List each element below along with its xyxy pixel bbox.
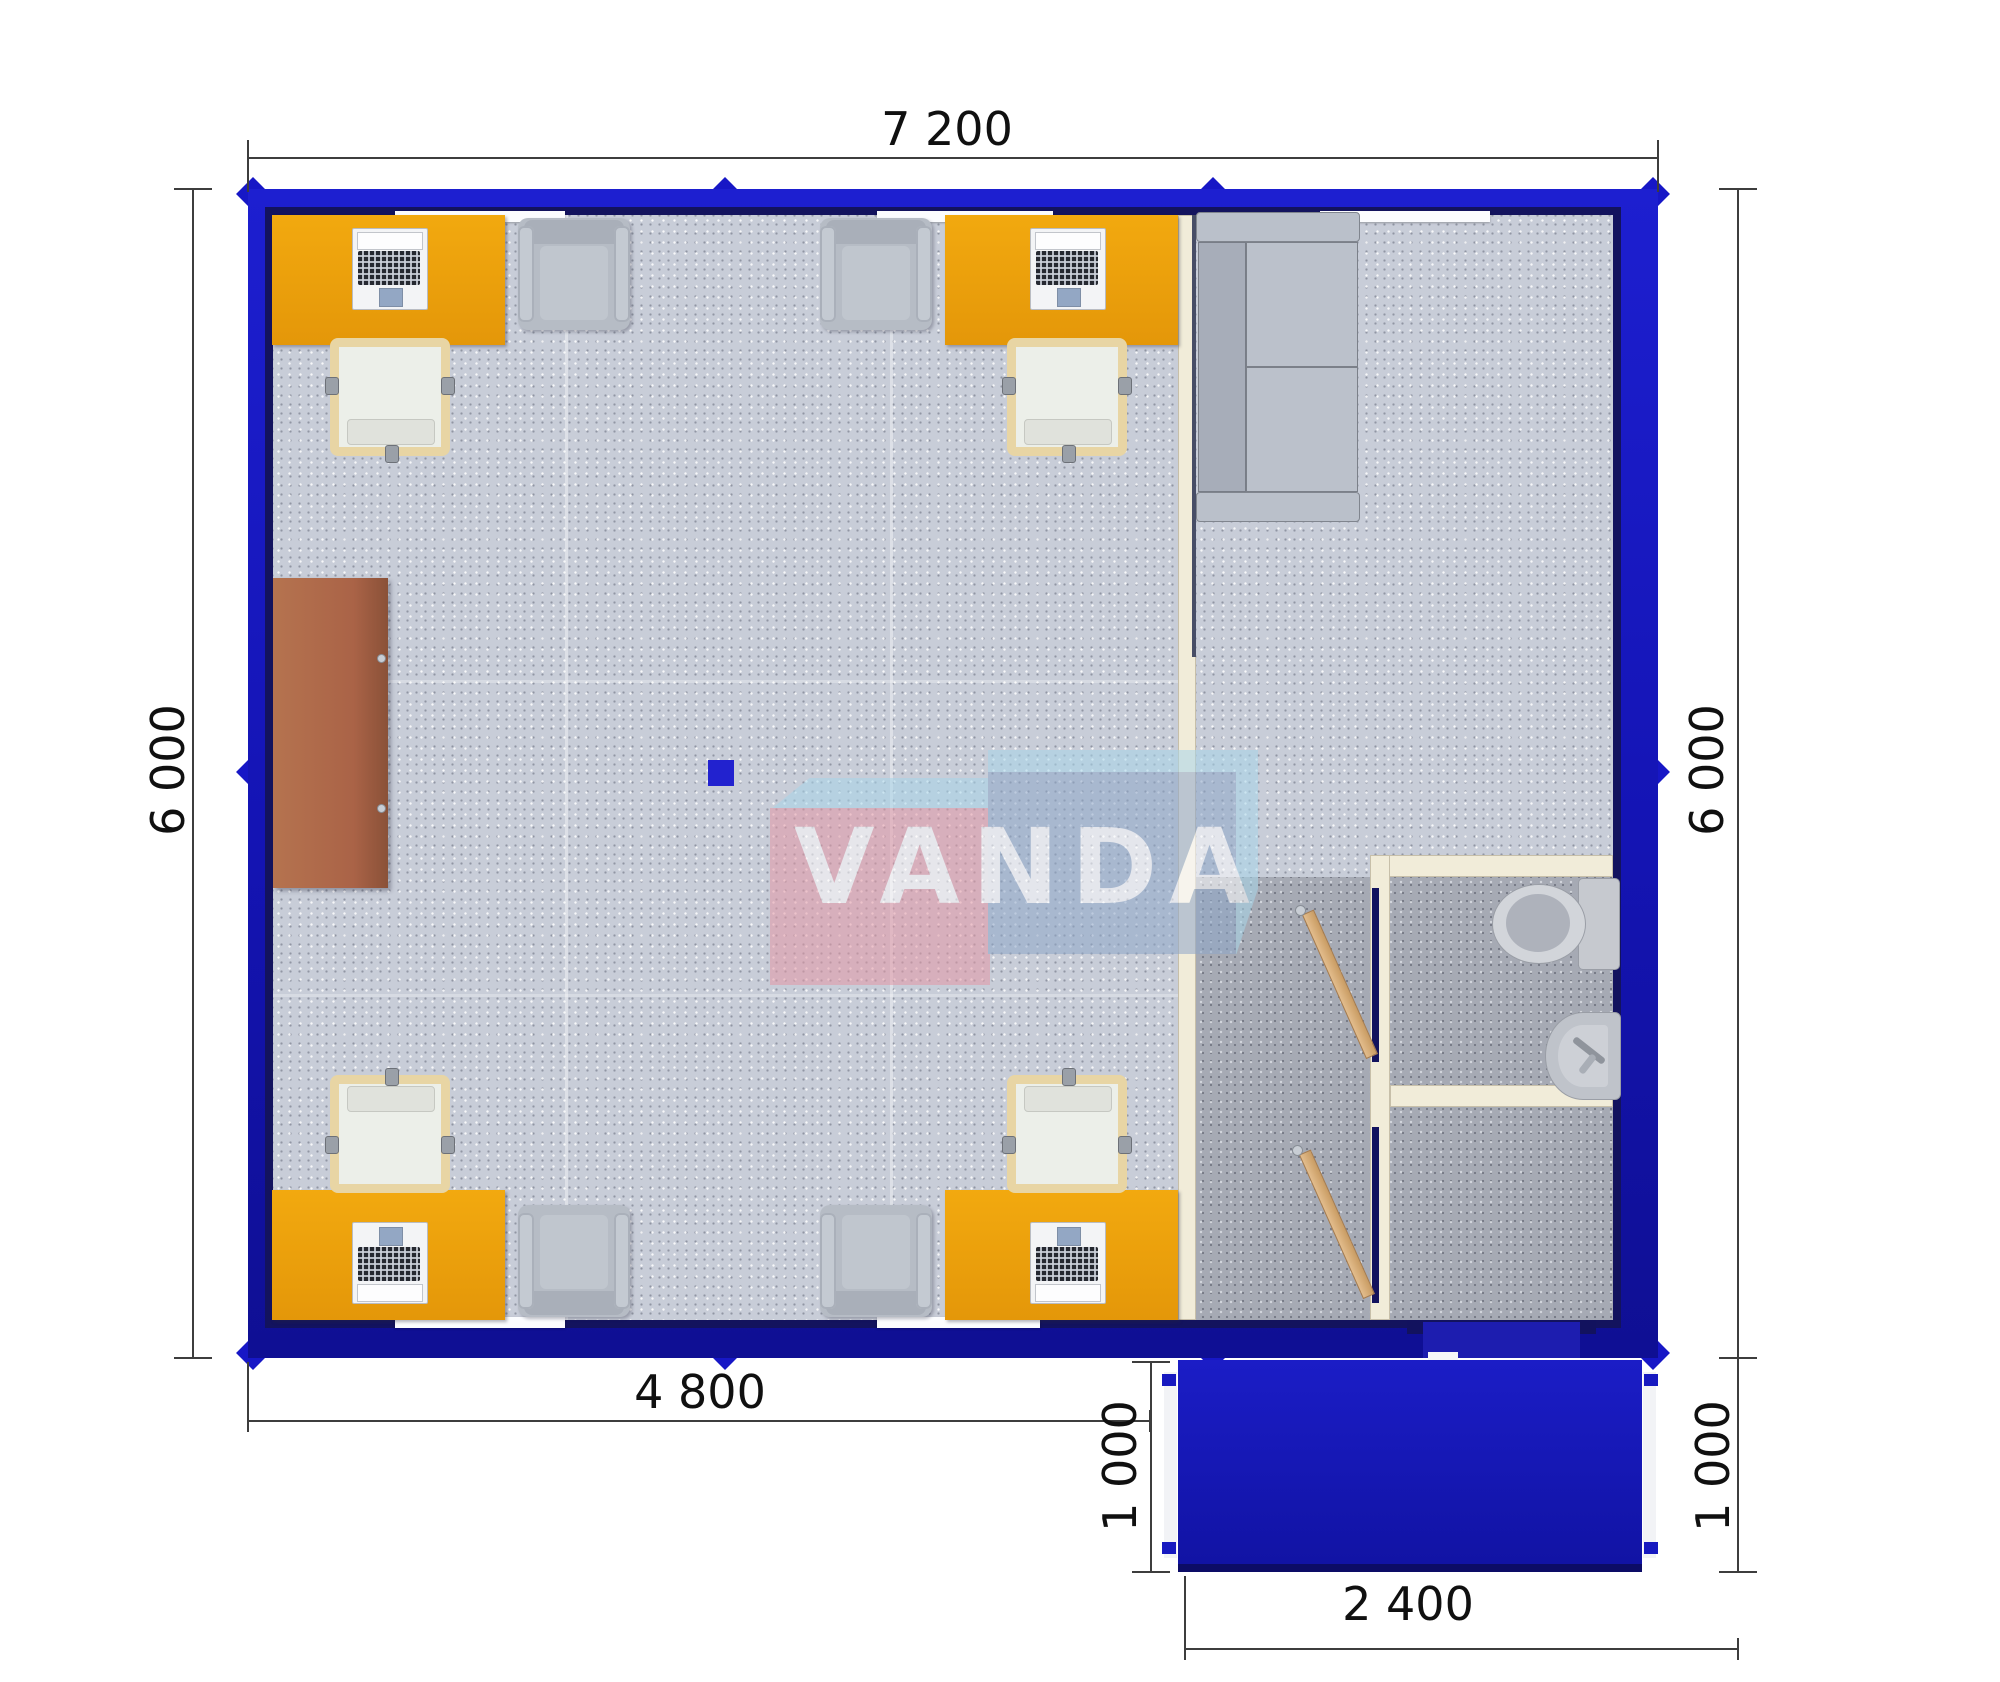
porch-corner-foot bbox=[1162, 1374, 1176, 1386]
laptop bbox=[352, 228, 428, 310]
dim-line-porch-left bbox=[1150, 1362, 1152, 1572]
sofa-seat-cushion bbox=[1246, 242, 1358, 367]
door-frame bbox=[1372, 1127, 1379, 1303]
visitor-chair-back bbox=[524, 220, 624, 244]
office-chair bbox=[1007, 338, 1127, 456]
laptop-screen bbox=[1035, 1284, 1101, 1302]
dim-line-porch-width bbox=[1185, 1648, 1738, 1650]
chair-caster bbox=[1062, 445, 1076, 463]
chair-caster bbox=[325, 1136, 339, 1154]
visitor-chair-armrest bbox=[518, 226, 534, 322]
laptop-keyboard bbox=[1036, 251, 1098, 285]
carpet-seam bbox=[273, 680, 1178, 683]
door-hinge bbox=[1295, 905, 1306, 916]
visitor-chair-armrest bbox=[614, 226, 630, 322]
cabinet-handle bbox=[377, 654, 386, 663]
dim-tick bbox=[1737, 1638, 1739, 1660]
visitor-chair-seat bbox=[842, 246, 910, 320]
dim-label-left-height: 6 000 bbox=[143, 690, 193, 850]
storage-cabinet bbox=[273, 578, 388, 888]
partition-wall-shadow bbox=[1192, 215, 1196, 657]
floor-plan-canvas: VANDA 7 200 6 000 6 000 1 000 4 800 1 00… bbox=[0, 0, 2000, 1682]
dim-label-porch-right-depth: 1 000 bbox=[1688, 1386, 1738, 1546]
laptop-trackpad bbox=[1057, 288, 1081, 307]
carpet-seam bbox=[890, 215, 893, 1320]
cabinet-handle bbox=[377, 804, 386, 813]
laptop-trackpad bbox=[1057, 1227, 1081, 1246]
dim-line-office-width bbox=[248, 1420, 1150, 1422]
dim-label-porch-width: 2 400 bbox=[1258, 1579, 1558, 1629]
chair-caster bbox=[1002, 377, 1016, 395]
dim-tick bbox=[1132, 1361, 1170, 1363]
dim-label-top-width: 7 200 bbox=[797, 104, 1097, 154]
chair-caster bbox=[385, 445, 399, 463]
dim-tick bbox=[1132, 1571, 1170, 1573]
visitor-chair-armrest bbox=[614, 1213, 630, 1309]
floor-socket bbox=[708, 760, 734, 786]
dim-tick bbox=[1184, 1638, 1186, 1660]
entrance-door-frame bbox=[1407, 1320, 1423, 1334]
toilet-seat bbox=[1506, 894, 1570, 952]
visitor-chair-armrest bbox=[916, 1213, 932, 1309]
dim-line-right bbox=[1737, 189, 1739, 1572]
porch-step bbox=[1178, 1360, 1642, 1572]
bathroom-wall-top bbox=[1370, 855, 1613, 877]
laptop-trackpad bbox=[379, 1227, 403, 1246]
chair-caster bbox=[1118, 1136, 1132, 1154]
visitor-chair bbox=[820, 1205, 932, 1317]
laptop-screen bbox=[357, 1284, 423, 1302]
chair-caster bbox=[441, 1136, 455, 1154]
sofa-armrest bbox=[1196, 212, 1360, 242]
dim-tick bbox=[1657, 140, 1659, 192]
dim-tick bbox=[247, 1410, 249, 1432]
porch-side-rail bbox=[1164, 1372, 1177, 1558]
visitor-chair-back bbox=[826, 1291, 926, 1315]
visitor-chair-back bbox=[826, 220, 926, 244]
dim-tick bbox=[174, 188, 212, 190]
laptop-screen bbox=[1035, 232, 1101, 250]
chair-caster bbox=[1002, 1136, 1016, 1154]
visitor-chair-armrest bbox=[820, 226, 836, 322]
porch-corner-foot bbox=[1644, 1374, 1658, 1386]
dim-label-office-width: 4 800 bbox=[550, 1367, 850, 1417]
sofa-armrest bbox=[1196, 492, 1360, 522]
sofa-back bbox=[1198, 242, 1246, 492]
chair-caster bbox=[1062, 1068, 1076, 1086]
dim-label-porch-left-depth: 1 000 bbox=[1095, 1386, 1145, 1546]
visitor-chair-seat bbox=[540, 246, 608, 320]
visitor-chair bbox=[518, 1205, 630, 1317]
entrance-door-frame bbox=[1580, 1320, 1596, 1334]
sofa-seat-cushion bbox=[1246, 367, 1358, 492]
chair-caster bbox=[325, 377, 339, 395]
laptop-keyboard bbox=[1036, 1247, 1098, 1281]
office-chair bbox=[330, 338, 450, 456]
dim-tick bbox=[247, 140, 249, 192]
laptop bbox=[1030, 1222, 1106, 1304]
dim-line-top bbox=[248, 157, 1658, 159]
chair-caster bbox=[1118, 377, 1132, 395]
visitor-chair bbox=[820, 218, 932, 330]
visitor-chair-seat bbox=[842, 1215, 910, 1289]
office-chair-back bbox=[347, 419, 435, 445]
laptop bbox=[352, 1222, 428, 1304]
dim-tick bbox=[1719, 1357, 1757, 1359]
laptop bbox=[1030, 228, 1106, 310]
porch-side-rail bbox=[1643, 1372, 1656, 1558]
visitor-chair bbox=[518, 218, 630, 330]
visitor-chair-armrest bbox=[518, 1213, 534, 1309]
dim-label-right-height: 6 000 bbox=[1682, 690, 1732, 850]
laptop-trackpad bbox=[379, 288, 403, 307]
laptop-keyboard bbox=[358, 1247, 420, 1281]
porch-corner-foot bbox=[1644, 1542, 1658, 1554]
visitor-chair-seat bbox=[540, 1215, 608, 1289]
office-chair bbox=[1007, 1075, 1127, 1193]
dim-tick bbox=[1719, 188, 1757, 190]
sink bbox=[1545, 1012, 1621, 1100]
visitor-chair-armrest bbox=[820, 1213, 836, 1309]
dim-tick bbox=[1719, 1571, 1757, 1573]
carpet-seam bbox=[273, 994, 1178, 997]
door-frame bbox=[1372, 888, 1379, 1062]
porch-corner-foot bbox=[1162, 1542, 1176, 1554]
office-chair-back bbox=[347, 1086, 435, 1112]
laptop-keyboard bbox=[358, 251, 420, 285]
office-chair-back bbox=[1024, 419, 1112, 445]
office-chair bbox=[330, 1075, 450, 1193]
carpet-seam bbox=[565, 215, 568, 1320]
visitor-chair-armrest bbox=[916, 226, 932, 322]
laptop-screen bbox=[357, 232, 423, 250]
office-chair-back bbox=[1024, 1086, 1112, 1112]
chair-caster bbox=[441, 377, 455, 395]
chair-caster bbox=[385, 1068, 399, 1086]
dim-tick bbox=[174, 1357, 212, 1359]
door-hinge bbox=[1292, 1145, 1303, 1156]
visitor-chair-back bbox=[524, 1291, 624, 1315]
